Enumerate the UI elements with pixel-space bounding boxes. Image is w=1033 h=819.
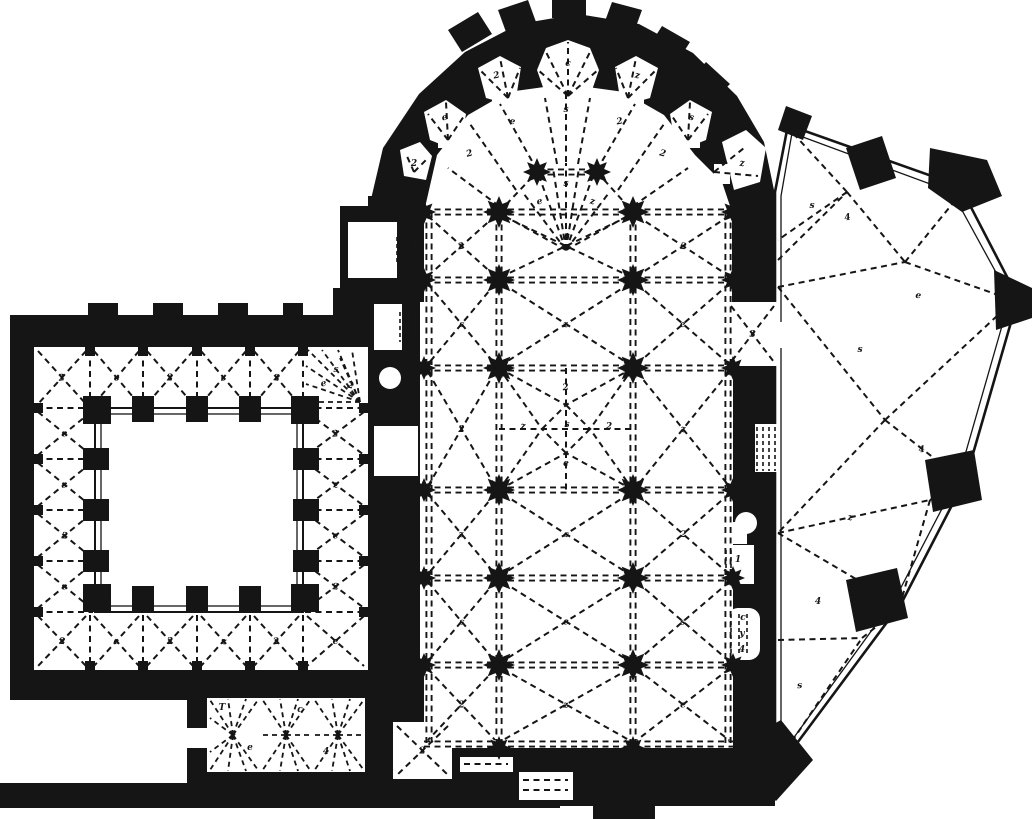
star-pier bbox=[483, 352, 515, 384]
cloister-pier bbox=[132, 396, 154, 422]
cloister-pier bbox=[34, 403, 43, 413]
hall-buttress-block bbox=[994, 270, 1032, 330]
cloister-pier bbox=[245, 661, 255, 670]
polygonal-hall-layer bbox=[775, 125, 1018, 758]
interior-space bbox=[348, 222, 397, 278]
wall-mass bbox=[218, 303, 248, 317]
interior-space bbox=[95, 408, 303, 612]
vault-boss-glyph: s bbox=[857, 345, 862, 355]
vault-boss-glyph: 2 bbox=[457, 425, 464, 435]
wall-respond-pier bbox=[412, 478, 436, 502]
vault-boss-glyph: 2 bbox=[457, 701, 464, 711]
vault-boss-glyph: c bbox=[740, 613, 746, 623]
vault-boss-glyph: e bbox=[62, 430, 68, 440]
vault-boss-glyph: 4 bbox=[323, 747, 329, 757]
floor-plan-svg: szsez2s2zs22ez2se2e2s22e2z2ees2e2ze232es… bbox=[0, 0, 1033, 819]
wall-mass bbox=[593, 798, 655, 819]
cloister-pier bbox=[359, 556, 368, 566]
interior-space bbox=[778, 322, 793, 348]
vault-boss-glyph: s bbox=[563, 530, 569, 540]
vault-boss-glyph: 2 bbox=[678, 241, 687, 252]
cloister-pier bbox=[293, 448, 319, 470]
vault-boss-glyph: e bbox=[247, 743, 253, 753]
wall-respond-pier bbox=[721, 478, 745, 502]
vault-boss-glyph: e bbox=[563, 618, 569, 628]
wall-respond-pier bbox=[412, 200, 436, 224]
star-pier bbox=[617, 562, 649, 594]
star-pier bbox=[483, 474, 515, 506]
hall-outer-wall bbox=[775, 125, 1018, 758]
cloister-pier bbox=[298, 347, 308, 356]
vault-boss-glyph: 2 bbox=[605, 422, 612, 432]
vault-boss-glyph: 2 bbox=[166, 374, 173, 384]
vault-boss-glyph: 2 bbox=[272, 373, 281, 384]
cloister-pier bbox=[83, 499, 109, 521]
cloister-pier bbox=[34, 505, 43, 515]
vault-boss-glyph: 4 bbox=[815, 597, 821, 607]
wall-mass bbox=[153, 303, 183, 317]
vault-boss-glyph: z bbox=[679, 425, 686, 435]
vault-boss-glyph: z bbox=[519, 422, 526, 432]
cloister-pier bbox=[359, 403, 368, 413]
wall-mass bbox=[283, 303, 303, 317]
vault-boss-glyph: e bbox=[113, 637, 120, 647]
cloister-pier bbox=[83, 396, 111, 424]
vault-boss-glyph: y bbox=[738, 629, 745, 639]
star-pier bbox=[617, 649, 649, 681]
cloister-pier bbox=[186, 396, 208, 422]
wall-mass bbox=[333, 288, 370, 318]
vault-boss-glyph: 2 bbox=[58, 637, 66, 648]
vault-boss-glyph: 4 bbox=[563, 233, 569, 243]
wall-respond-pier bbox=[721, 268, 745, 292]
wall-respond-pier bbox=[487, 736, 511, 760]
cloister-pier bbox=[293, 499, 319, 521]
interior-space bbox=[379, 367, 401, 389]
star-pier bbox=[617, 474, 649, 506]
interior-space bbox=[185, 728, 209, 748]
cloister-pier bbox=[85, 661, 95, 670]
wall-mass bbox=[88, 303, 118, 317]
vault-boss-glyph: e bbox=[680, 701, 686, 711]
interior-space bbox=[374, 426, 418, 476]
vault-boss-glyph: 2 bbox=[561, 383, 570, 394]
vault-boss-glyph: s bbox=[333, 365, 338, 375]
hall-buttress-block bbox=[925, 450, 982, 512]
vault-boss-glyph: e bbox=[333, 637, 339, 647]
vault-boss-glyph: 2 bbox=[331, 582, 339, 593]
interior-space bbox=[374, 304, 402, 350]
interior-space bbox=[0, 700, 187, 783]
cloister-pier bbox=[34, 556, 43, 566]
cloister-pier bbox=[291, 584, 319, 612]
vault-boss-glyph: s bbox=[61, 480, 67, 490]
star-pier bbox=[483, 562, 515, 594]
vault-boss-glyph: s bbox=[563, 242, 568, 252]
vault-boss-glyph: 4 bbox=[739, 645, 745, 655]
vault-boss-glyph: 2 bbox=[60, 531, 68, 542]
vault-boss-glyph: 2 bbox=[272, 637, 280, 648]
cloister-pier bbox=[239, 586, 261, 612]
cloister-pier bbox=[359, 505, 368, 515]
wall-respond-pier bbox=[412, 653, 436, 677]
cloister-pier bbox=[186, 586, 208, 612]
cloister-pier bbox=[83, 448, 109, 470]
wall-respond-pier bbox=[721, 566, 745, 590]
cloister-pier bbox=[85, 347, 95, 356]
wall-mass bbox=[552, 0, 586, 18]
vault-boss-glyph: s bbox=[220, 373, 226, 383]
wall-respond-pier bbox=[412, 268, 436, 292]
vault-boss-glyph: e bbox=[230, 731, 236, 741]
cloister-pier bbox=[192, 347, 202, 356]
cloister-pier bbox=[138, 661, 148, 670]
wall-respond-pier bbox=[721, 200, 745, 224]
interior-space bbox=[519, 772, 573, 800]
star-pier bbox=[617, 196, 649, 228]
vault-boss-glyph: 3 bbox=[749, 330, 755, 340]
cloister-pier bbox=[359, 454, 368, 464]
hemicycle-pier bbox=[583, 158, 611, 186]
hemicycle-pier bbox=[523, 158, 551, 186]
vault-boss-glyph: s bbox=[563, 179, 568, 189]
cloister-pier bbox=[83, 584, 111, 612]
cloister-pier bbox=[245, 347, 255, 356]
cloister-pier bbox=[34, 607, 43, 617]
star-pier bbox=[617, 264, 649, 296]
star-pier bbox=[617, 352, 649, 384]
cloister-pier bbox=[138, 347, 148, 356]
vault-boss-glyph: 2 bbox=[418, 747, 425, 757]
vault-boss-glyph: s bbox=[563, 105, 568, 115]
vault-boss-glyph: 2 bbox=[410, 159, 417, 169]
interior-space bbox=[730, 522, 747, 544]
vault-boss-glyph: s bbox=[680, 617, 686, 627]
cloister-pier bbox=[291, 396, 319, 424]
star-pier bbox=[483, 196, 515, 228]
star-pier bbox=[483, 264, 515, 296]
vault-boss-glyph: c bbox=[297, 705, 303, 715]
vault-boss-glyph: s bbox=[809, 201, 814, 211]
cloister-pier bbox=[293, 550, 319, 572]
vault-boss-glyph: e bbox=[335, 731, 341, 741]
cloister-pier bbox=[359, 607, 368, 617]
wall-respond-pier bbox=[412, 566, 436, 590]
vault-boss-glyph: 2 bbox=[679, 530, 687, 541]
vault-boss-glyph: z bbox=[738, 159, 745, 169]
vault-boss-glyph: c bbox=[565, 59, 571, 69]
cloister-pier bbox=[132, 586, 154, 612]
vault-boss-glyph: s bbox=[459, 617, 465, 627]
vault-boss-glyph: e bbox=[333, 532, 339, 542]
vault-boss-glyph: 2 bbox=[331, 429, 339, 440]
wall-respond-pier bbox=[721, 356, 745, 380]
vault-boss-glyph: s bbox=[564, 420, 569, 430]
vault-boss-glyph: 2 bbox=[57, 373, 66, 384]
cloister-pier bbox=[298, 661, 308, 670]
vault-boss-glyph: 2 bbox=[166, 637, 173, 647]
cloister-pier bbox=[239, 396, 261, 422]
vault-boss-glyph: s bbox=[459, 320, 465, 330]
wall-respond-pier bbox=[621, 736, 645, 760]
vault-boss-glyph: e bbox=[62, 583, 68, 593]
floor-plan-page: szsez2s2zs22ez2se2e2s22e2z2ees2e2ze232es… bbox=[0, 0, 1033, 819]
cloister-pier bbox=[83, 550, 109, 572]
vault-boss-glyph: 1 bbox=[735, 555, 741, 565]
vault-boss-glyph: 4 bbox=[918, 445, 925, 456]
wall-respond-pier bbox=[412, 356, 436, 380]
wall-mass bbox=[0, 782, 560, 808]
star-pier bbox=[483, 649, 515, 681]
vault-boss-glyph: s bbox=[283, 731, 288, 741]
cloister-pier bbox=[192, 661, 202, 670]
vault-boss-glyph: e bbox=[563, 459, 569, 469]
wall-respond-pier bbox=[721, 653, 745, 677]
cloister-pier bbox=[34, 454, 43, 464]
